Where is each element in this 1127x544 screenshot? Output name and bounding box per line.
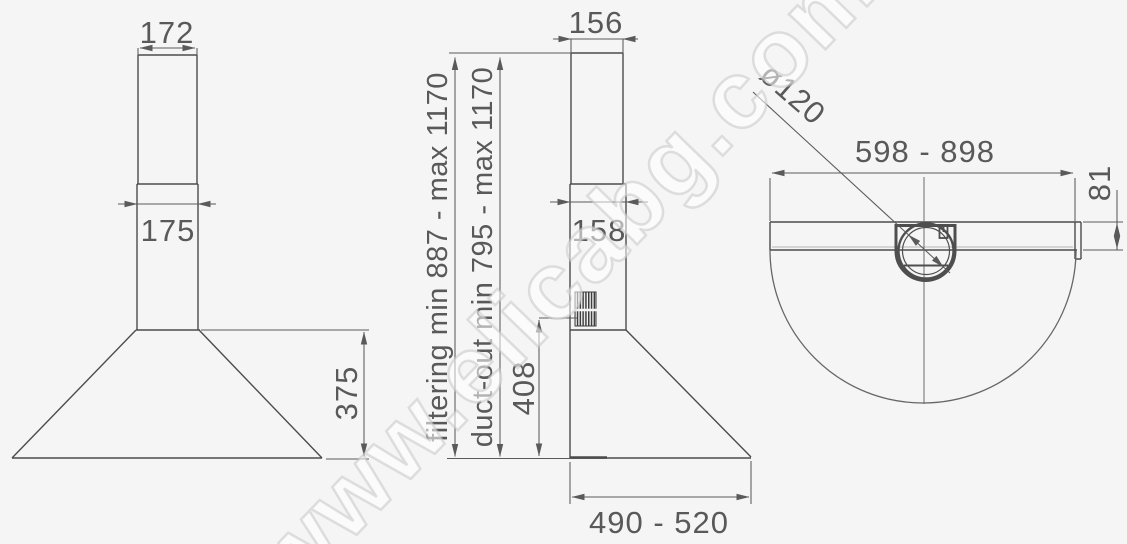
dim-label-hood-width: 598 - 898 bbox=[855, 134, 995, 169]
top-canopy-semicircle bbox=[770, 250, 1076, 403]
dim-label-canopy-height: 375 bbox=[329, 366, 364, 421]
ext-598-898 bbox=[770, 178, 1075, 221]
technical-drawing: 172 175 375 bbox=[0, 0, 1127, 544]
side-view bbox=[570, 53, 751, 458]
dim-label-chimney-lower-width: 175 bbox=[141, 213, 196, 248]
arrow-diameter-upper bbox=[909, 235, 917, 242]
vent-grille bbox=[574, 292, 597, 326]
dim-label-canopy-depth: 490 - 520 bbox=[589, 505, 729, 540]
ext-156 bbox=[571, 39, 623, 53]
dim-label-filtering-height: filtering min 887 - max 1170 bbox=[422, 72, 454, 442]
dim-label-chimney-top-width: 172 bbox=[140, 15, 195, 50]
dim-label-hood-body-height: 408 bbox=[506, 361, 541, 416]
front-view bbox=[12, 55, 322, 458]
front-canopy bbox=[12, 330, 322, 458]
front-chimney bbox=[137, 55, 198, 330]
dim-label-chimney-top-depth: 156 bbox=[569, 5, 624, 40]
dim-label-rail-depth: 81 bbox=[1082, 165, 1117, 201]
leader-diameter bbox=[753, 92, 950, 273]
dim-label-chimney-lower-depth: 158 bbox=[572, 213, 627, 248]
ext-490-520 bbox=[570, 461, 751, 504]
dim-label-duct-diameter: ø120 bbox=[753, 56, 832, 131]
side-chimney bbox=[570, 53, 626, 330]
dimension-drawing-page: 172 175 375 bbox=[0, 0, 1127, 544]
top-view bbox=[770, 177, 1081, 404]
dim-label-duct-out-height: duct-out min 795 - max 1170 bbox=[467, 67, 499, 448]
